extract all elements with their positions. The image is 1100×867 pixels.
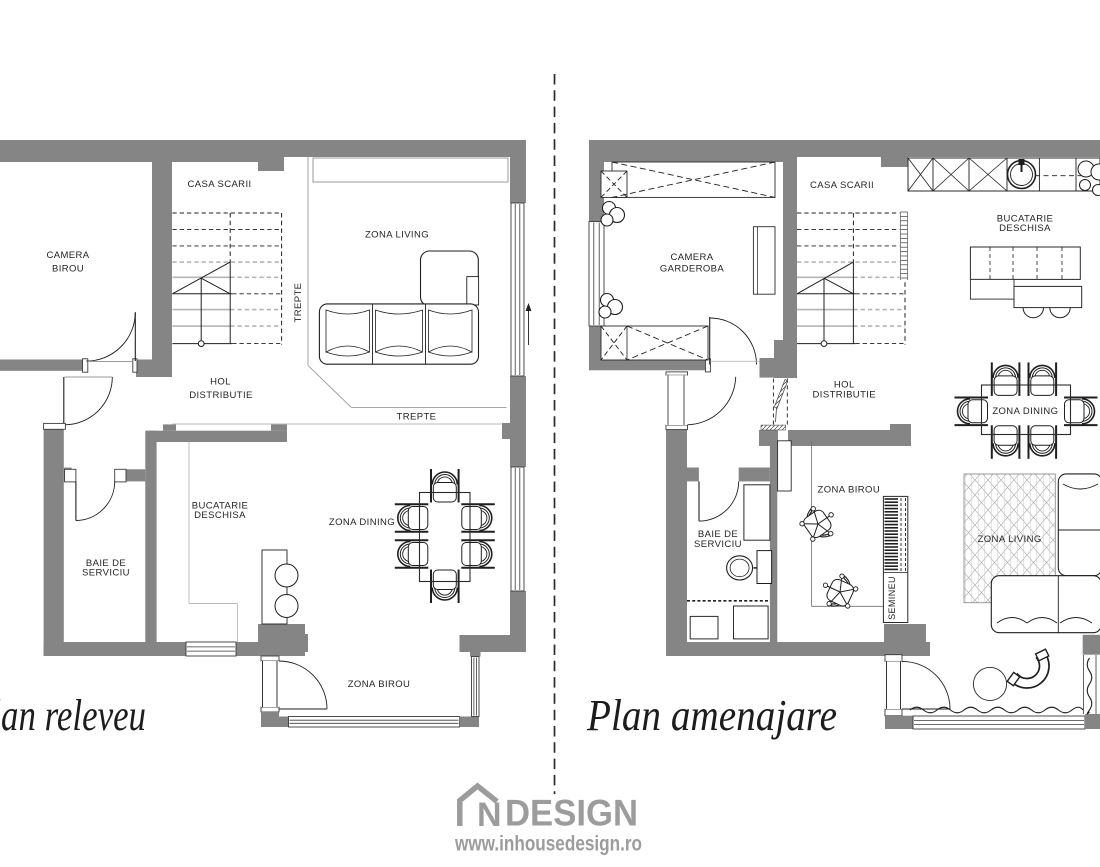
svg-text:CAMERA: CAMERA — [46, 250, 89, 261]
svg-text:CAMERA: CAMERA — [670, 252, 713, 263]
svg-text:CASA SCARII: CASA SCARII — [187, 179, 251, 190]
svg-text:HOL: HOL — [210, 377, 231, 388]
svg-text:ZONA BIROU: ZONA BIROU — [348, 679, 411, 690]
svg-text:ZONA DINING: ZONA DINING — [992, 406, 1058, 417]
svg-text:ZONA LIVING: ZONA LIVING — [978, 534, 1042, 545]
svg-text:DISTRIBUTIE: DISTRIBUTIE — [189, 390, 253, 401]
svg-text:CASA SCARII: CASA SCARII — [810, 180, 874, 191]
svg-text:DESCHISA: DESCHISA — [999, 223, 1051, 234]
svg-text:www.inhousedesign.ro: www.inhousedesign.ro — [454, 833, 642, 856]
svg-text:SERVICIU: SERVICIU — [694, 539, 742, 550]
svg-text:GARDEROBA: GARDEROBA — [660, 264, 725, 275]
svg-text:BIROU: BIROU — [52, 264, 84, 275]
svg-text:N: N — [477, 796, 502, 834]
svg-text:ZONA DINING: ZONA DINING — [329, 517, 395, 528]
svg-text:SERVICIU: SERVICIU — [82, 568, 130, 579]
svg-text:DESCHISA: DESCHISA — [194, 510, 246, 521]
svg-text:TREPTE: TREPTE — [293, 283, 304, 323]
svg-text:DESIGN: DESIGN — [505, 792, 638, 833]
svg-text:Plan amenajare: Plan amenajare — [586, 691, 837, 740]
svg-text:ZONA BIROU: ZONA BIROU — [818, 485, 881, 496]
svg-text:Plan releveu: Plan releveu — [0, 691, 146, 740]
svg-text:TREPTE: TREPTE — [397, 412, 437, 423]
svg-text:SEMINEU: SEMINEU — [887, 576, 897, 620]
svg-text:DISTRIBUTIE: DISTRIBUTIE — [813, 390, 877, 401]
svg-text:ZONA LIVING: ZONA LIVING — [365, 230, 429, 241]
